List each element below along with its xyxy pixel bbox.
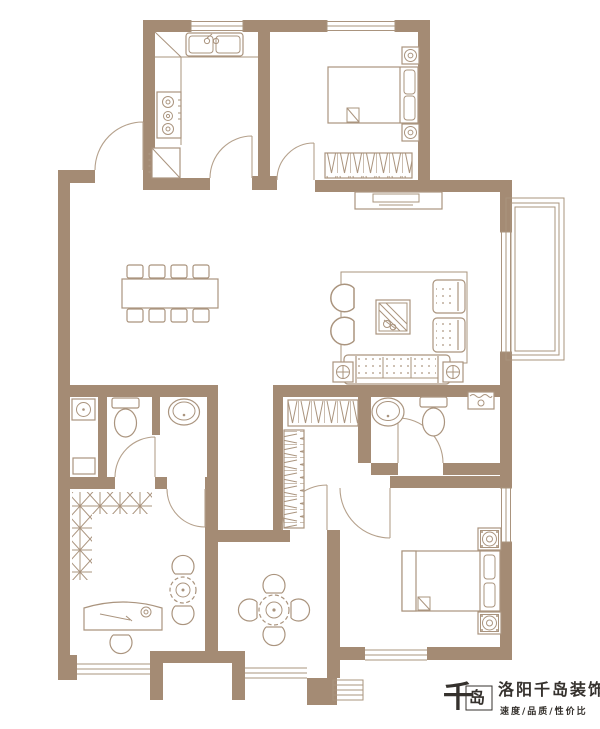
- wall: [58, 655, 77, 680]
- side-table-right: [443, 362, 463, 382]
- corner-basin: [468, 392, 494, 409]
- wall: [337, 647, 365, 660]
- wall: [315, 180, 418, 192]
- bedroom-top-door: [277, 143, 314, 180]
- kitchen-door: [210, 136, 252, 178]
- window-master-bottom-bay: [365, 647, 427, 660]
- floor-plan-canvas: 千 岛 洛阳千岛装饰 速度/品质/性价比: [0, 0, 600, 729]
- window-kitchen-top: [191, 20, 243, 32]
- wall: [58, 170, 70, 680]
- wardrobe-top-bedroom: [325, 153, 412, 178]
- study-chair-top: [172, 555, 194, 574]
- coffee-table: [376, 300, 410, 334]
- tea-chair-right: [291, 599, 310, 621]
- cloak-wardrobe-left: [284, 430, 304, 528]
- wall: [205, 477, 218, 489]
- balcony: [506, 198, 564, 360]
- bed-top: [328, 67, 418, 123]
- study-shelf-top: [72, 492, 152, 514]
- tea-chair-bottom: [263, 627, 285, 646]
- toilet-door: [115, 437, 155, 477]
- wall: [418, 20, 430, 192]
- entry-door: [95, 122, 143, 170]
- study: [72, 492, 196, 654]
- cloakroom: [284, 400, 358, 528]
- wall: [273, 385, 500, 397]
- wall: [243, 20, 327, 32]
- wall: [152, 397, 160, 435]
- kitchen-sink: [186, 33, 243, 56]
- nightstand-lamp-top: [402, 47, 419, 64]
- desk-chair: [110, 635, 132, 654]
- dining-area: [122, 265, 218, 322]
- armchair-2: [331, 317, 354, 345]
- wall: [205, 489, 218, 660]
- window-master-right: [500, 488, 512, 542]
- wall: [273, 397, 283, 530]
- wall: [427, 647, 512, 660]
- wall: [443, 463, 500, 475]
- wall: [232, 651, 245, 700]
- tv-cabinet: [355, 192, 442, 209]
- wall: [252, 176, 277, 190]
- tea-chair-top: [263, 574, 285, 593]
- master-bedroom: [402, 528, 501, 634]
- bed-master: [402, 551, 500, 611]
- loveseat-2: [433, 318, 465, 352]
- round-table: [259, 595, 289, 625]
- wall: [418, 180, 512, 192]
- wall: [98, 397, 107, 477]
- sofa-three-seat: [344, 355, 450, 384]
- refrigerator: [148, 148, 180, 178]
- study-tea-table: [170, 577, 196, 603]
- wall: [371, 463, 398, 475]
- wall: [258, 32, 270, 178]
- toilet-2: [420, 397, 447, 436]
- window-tearoom-bottom: [245, 668, 307, 678]
- wall: [58, 477, 115, 489]
- window-study-bottom: [77, 664, 150, 674]
- gas-stove: [157, 92, 181, 138]
- wall: [150, 651, 245, 663]
- logo: 千 岛 洛阳千岛装饰 速度/品质/性价比: [443, 680, 600, 717]
- wall: [218, 530, 290, 542]
- wall: [155, 477, 167, 489]
- study-chair-bottom: [172, 606, 194, 625]
- side-table-left: [333, 362, 353, 382]
- bathroom-main: [72, 398, 200, 474]
- window-bedroom-top: [327, 20, 395, 32]
- bath-shelf: [73, 458, 95, 474]
- master-nightstand-top: [478, 528, 501, 550]
- floor-plan-drawing: 千 岛 洛阳千岛装饰 速度/品质/性价比: [0, 0, 600, 729]
- wall: [500, 542, 512, 652]
- wall: [358, 397, 371, 463]
- logo-mark-2: 岛: [469, 688, 485, 707]
- study-shelf-left: [72, 514, 92, 580]
- laundry-basin: [72, 399, 95, 420]
- tea-room: [238, 574, 309, 645]
- toilet-1: [112, 398, 139, 437]
- cloak-wardrobe-top: [288, 400, 358, 426]
- nightstand-lamp-bottom: [402, 124, 419, 141]
- living-room: [331, 272, 467, 384]
- company-tagline: 速度/品质/性价比: [500, 705, 588, 717]
- dining-table: [122, 279, 218, 308]
- wall: [58, 385, 218, 397]
- wall: [207, 397, 218, 489]
- company-name: 洛阳千岛装饰: [498, 680, 600, 699]
- washbasin-oval-2: [372, 398, 404, 426]
- armchair-1: [331, 284, 354, 312]
- wall: [143, 178, 210, 190]
- loveseat-1: [433, 280, 465, 313]
- master-door: [340, 488, 390, 538]
- bathroom-2: [372, 392, 494, 436]
- wall: [390, 476, 512, 488]
- exterior-steps: [333, 680, 363, 700]
- kitchen: [148, 32, 258, 178]
- wall: [500, 397, 512, 488]
- study-door: [167, 489, 205, 527]
- tea-chair-left: [238, 599, 257, 621]
- desk: [84, 602, 162, 630]
- master-nightstand-bottom: [478, 612, 501, 634]
- wall: [150, 651, 163, 700]
- washbasin-oval-1: [169, 399, 200, 425]
